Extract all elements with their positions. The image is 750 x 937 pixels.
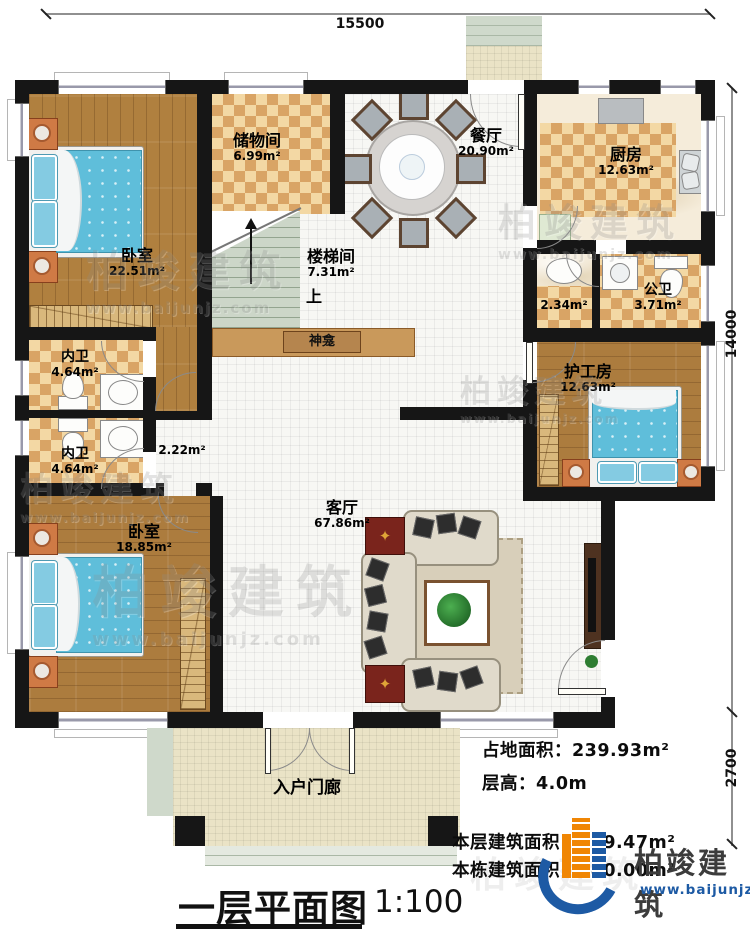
pillow [32,201,57,247]
back-door-opening [468,80,524,94]
sink-basin [681,171,701,191]
toilet-tank [654,256,688,269]
room-area: 12.63m² [581,164,671,177]
wardrobe [180,578,206,710]
window [15,556,29,650]
room-label-storage: 储物间 6.99m² [212,132,302,163]
window [15,420,29,456]
wardrobe [29,305,153,329]
wall [196,483,212,496]
door-leaf [265,728,271,774]
chair [399,90,429,120]
up-text: 上 [296,288,332,306]
back-porch-steps [466,16,542,46]
sofa-cushion [366,610,388,632]
title-scale: 1:100 [374,884,463,920]
room-area: 3.71m² [618,299,698,312]
toilet-tank [58,418,88,432]
front-porch-step [205,846,457,866]
stat-value: 4.0m [536,774,587,794]
lamp-icon [568,464,584,480]
door-leaf [558,688,606,695]
pillow [32,605,57,649]
front-door-opening [263,712,353,728]
room-area: 4.64m² [47,366,103,379]
window-sill [716,116,725,216]
chair [399,218,429,248]
stair-up-arrowhead [245,218,257,229]
logo-building-icon [562,834,571,878]
dimension-width: 15500 [322,16,398,32]
room-name: 内卫 [47,447,103,463]
stat-value: 239.93m² [572,741,669,761]
dimension-porch: 2700 [724,738,740,798]
sink-basin [680,152,700,172]
window [701,265,715,322]
wall [601,697,615,728]
window [701,345,715,467]
room-label-kitchen: 厨房 12.63m² [581,146,671,177]
door-opening [143,341,156,377]
room-label-bedroom2: 卧室 18.85m² [99,523,189,554]
wall [601,501,615,640]
room-label-dining: 餐厅 20.90m² [441,127,531,158]
wall [197,94,212,420]
basin-icon [108,426,138,451]
stair-up-arrow [250,228,252,284]
room-area: 67.86m² [297,517,387,530]
chair [456,154,486,184]
room-label-caregiver: 护工房 12.63m² [543,363,633,394]
window [58,712,168,728]
brand-site: www.baijunjz.com [640,882,750,898]
stat-label: 占地面积： [482,741,572,761]
pillow [639,462,677,483]
pillow [32,155,57,201]
window [228,80,304,94]
floor-plan-canvas: ✦ ✦ 神龛 [0,0,750,937]
exterior-mask [615,501,750,712]
room-name: 楼梯间 [286,248,376,266]
room-name: 餐厅 [441,127,531,145]
room-area: 6.99m² [212,150,302,163]
room-name: 公卫 [618,283,698,299]
room-name: 储物间 [212,132,302,150]
room-label-living: 客厅 67.86m² [297,499,387,530]
room-area: 18.85m² [99,541,189,554]
nightstand [26,523,58,555]
dining-table-center [399,154,425,180]
lamp-icon [33,257,51,275]
lamp-icon [33,124,51,142]
dimension-line-right [731,88,733,712]
wall [523,380,537,487]
room-name: 客厅 [297,499,387,517]
pillow [32,561,57,605]
wall [150,411,212,420]
logo-building-icon [572,818,590,878]
room-name: 厨房 [581,146,671,164]
wall [29,327,150,340]
room-label-hallway: 2.22m² [152,444,212,457]
window [58,80,166,94]
front-porch-side [147,728,173,816]
wardrobe [539,394,559,486]
nightstand [562,459,590,487]
stat-floor-height: 层高：4.0m [482,770,587,795]
window [660,80,696,94]
room-label-public-bath: 公卫 3.71m² [618,283,698,312]
room-area: 4.64m² [47,463,103,476]
shrine-text: 神龛 [309,334,335,349]
door-leaf [349,728,355,774]
sofa-cushion [437,671,458,692]
door-opening [523,206,537,248]
window [578,80,610,94]
wall [523,487,715,501]
window [15,360,29,396]
wall [330,94,345,214]
wall [29,410,143,418]
stat-land-area: 占地面积：239.93m² [482,737,669,762]
tv-icon [588,558,596,632]
room-area: 2.22m² [152,444,212,457]
sofa-cushion [412,666,435,689]
dimension-height: 14000 [724,304,740,364]
room-name: 卧室 [99,523,189,541]
room-area: 12.63m² [543,381,633,394]
sofa-cushion [412,516,435,539]
nightstand [26,118,58,150]
stair-up-label: 上 [296,288,332,306]
room-label-stairwell: 楼梯间 7.31m² [286,248,376,279]
sofa-cushion [436,513,457,534]
stove-icon [598,98,644,124]
lamp-icon [683,464,699,480]
nightstand [26,656,58,688]
side-table: ✦ [365,665,405,703]
title-underline [176,924,362,929]
wall [210,496,223,712]
shrine-label: 神龛 [283,331,361,353]
room-name: 内卫 [47,350,103,366]
room-label-bath1: 内卫 4.64m² [47,350,103,379]
nightstand [26,251,58,283]
window [701,120,715,212]
logo-building-icon [592,830,606,878]
porch-pillar-left [175,816,205,846]
room-label-porch: 入户门廊 [252,779,362,798]
lamp-icon [33,662,51,680]
wall [400,407,533,420]
room-name: 护工房 [543,363,633,381]
door-leaf [526,342,533,384]
pillow [598,462,636,483]
room-name: 入户门廊 [252,779,362,798]
room-name: 卧室 [92,247,182,265]
washer-drum [610,263,630,283]
window [15,103,29,157]
door-opening [596,240,626,254]
room-area: 20.90m² [441,145,531,158]
room-label-washroom: 2.34m² [534,299,594,312]
stat-label: 层高： [482,774,536,794]
dimension-line-top [45,13,711,15]
room-area: 22.51m² [92,265,182,278]
basin-icon [108,380,138,405]
room-area: 7.31m² [286,266,376,279]
plant-icon [437,593,471,627]
room-label-bath2: 内卫 4.64m² [47,447,103,476]
chair [342,154,372,184]
lamp-icon [33,529,51,547]
room-area: 2.34m² [534,299,594,312]
wall [523,328,715,342]
room-label-bedroom1: 卧室 22.51m² [92,247,182,278]
window [440,712,554,728]
